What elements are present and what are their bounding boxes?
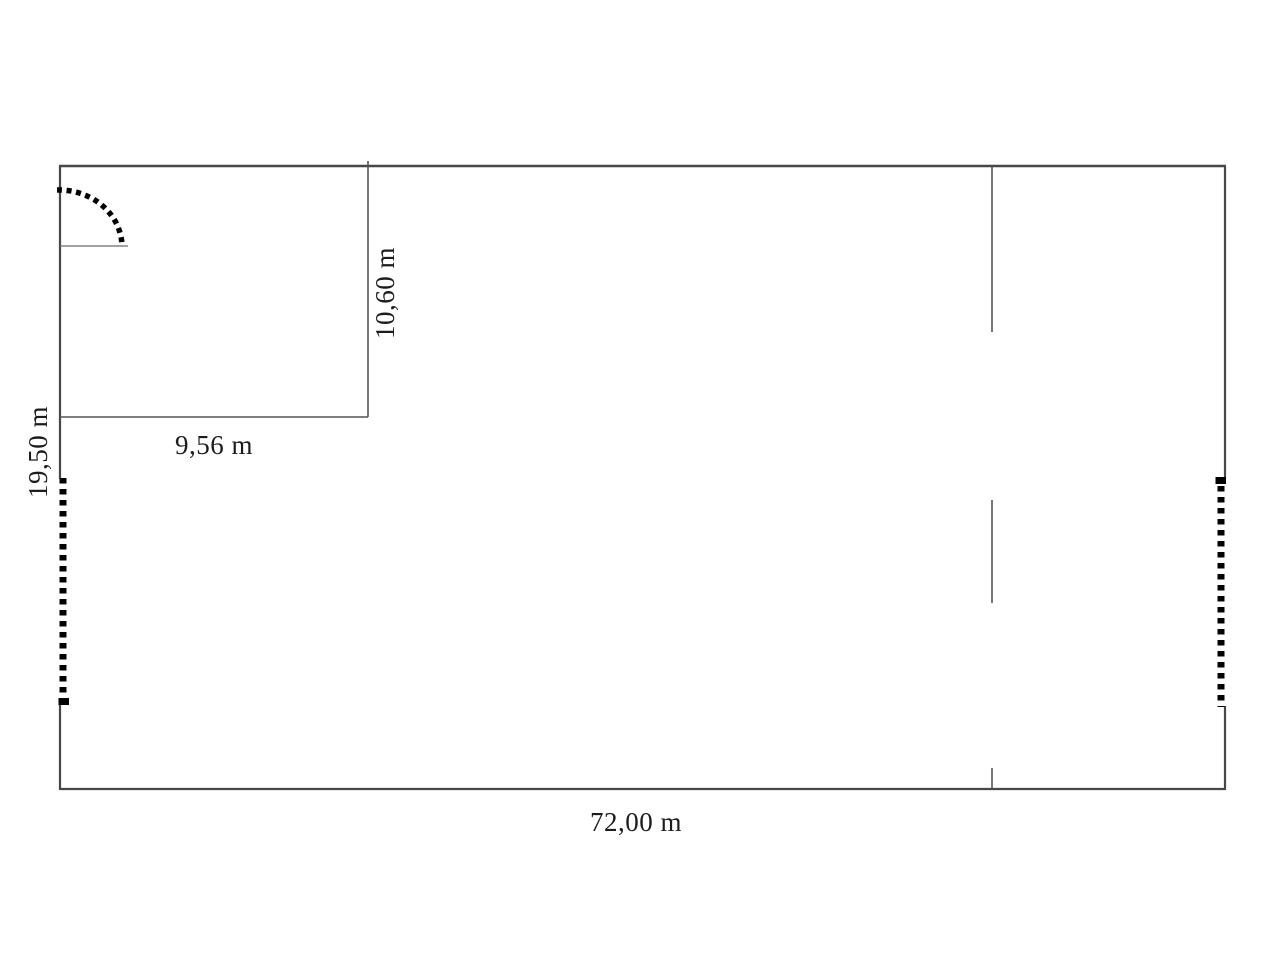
floor-plan-canvas: 72,00 m 19,50 m 9,56 m 10,60 m: [0, 0, 1280, 960]
dimension-label-total-width: 72,00 m: [590, 807, 682, 837]
dimension-label-room-height: 10,60 m: [370, 247, 400, 339]
door-swing-arc: [57, 190, 122, 246]
left-opening-end-cap: [59, 698, 70, 705]
right-opening-end-cap: [1216, 477, 1227, 484]
floor-plan-drawing: 72,00 m 19,50 m 9,56 m 10,60 m: [0, 0, 1280, 960]
dimension-label-total-height: 19,50 m: [23, 406, 53, 498]
dimension-label-room-width: 9,56 m: [175, 430, 253, 460]
